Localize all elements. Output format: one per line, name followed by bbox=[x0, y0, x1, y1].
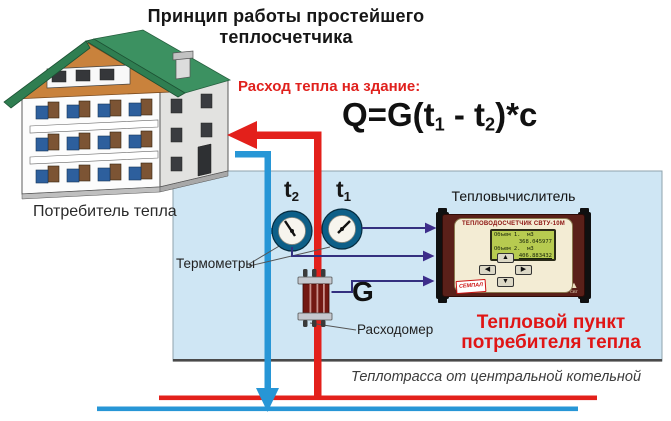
thermometer-t1 bbox=[322, 209, 362, 249]
flowmeter-bottom-flange bbox=[298, 313, 332, 320]
house-door bbox=[198, 144, 211, 176]
house-side-wall bbox=[160, 79, 228, 187]
device-button-up: ▲ bbox=[497, 253, 514, 263]
hot-pipe-to-building bbox=[250, 132, 321, 140]
heat-point-label: Тепловой пункт потребителя тепла bbox=[440, 313, 662, 353]
house-label: Потребитель тепла bbox=[33, 203, 177, 221]
flowmeter bbox=[298, 269, 332, 327]
formula-part: )*c bbox=[495, 96, 537, 133]
chimney-cap bbox=[173, 51, 193, 60]
house-illustration bbox=[4, 30, 230, 199]
brand-logo: СЕМПАЛ bbox=[456, 279, 487, 294]
return-pipe-riser bbox=[265, 151, 272, 390]
t2-label: t2 bbox=[284, 176, 299, 204]
device-button-down: ▼ bbox=[497, 277, 514, 287]
t1-subscript: 1 bbox=[344, 189, 351, 204]
lcd-line: 368.045977 bbox=[494, 239, 552, 246]
heat-point-box-bottom-border bbox=[173, 359, 662, 362]
formula-sub-1: 1 bbox=[435, 115, 445, 135]
attic-window bbox=[76, 70, 90, 81]
calculator-label: Тепловычислитель bbox=[436, 188, 591, 204]
lcd-line: Объем 1. м3 bbox=[494, 232, 552, 239]
formula-part: - t bbox=[445, 96, 485, 133]
return-pipe-main-line bbox=[97, 407, 578, 412]
formula: Q=G(t1 - t2)*c bbox=[342, 96, 537, 136]
formula-part: Q=G(t bbox=[342, 96, 435, 133]
hot-pipe-riser bbox=[314, 132, 322, 398]
heat-point-line2: потребителя тепла bbox=[440, 333, 662, 353]
hot-pipe-arrow-icon bbox=[227, 121, 257, 149]
attic-window bbox=[100, 69, 114, 80]
page-title: Принцип работы простейшего теплосчетчика bbox=[80, 6, 492, 48]
heat-point-line1: Тепловой пункт bbox=[440, 313, 662, 333]
heat-main-label: Теплотрасса от центральной котельной bbox=[340, 369, 652, 385]
flowmeter-body bbox=[303, 284, 329, 313]
device-button-left: ◀ bbox=[479, 265, 496, 275]
flowmeter-top-flange bbox=[298, 277, 332, 284]
hot-pipe-main-line bbox=[159, 396, 597, 401]
thermometer-t2 bbox=[272, 211, 312, 251]
t1-symbol: t bbox=[336, 176, 344, 202]
thermometers-label: Термометры bbox=[176, 256, 255, 271]
flowmeter-label: Расходомер bbox=[357, 322, 433, 337]
device-button-right: ▶ bbox=[515, 265, 532, 275]
formula-sub-2: 2 bbox=[485, 115, 495, 135]
heat-calculator-device: ▲СВТ ТЕПЛОВОДОСЧЕТЧИК СВТУ-10М Объем 1. … bbox=[436, 210, 591, 301]
t2-subscript: 2 bbox=[292, 189, 299, 204]
diagram-page: Принцип работы простейшего теплосчетчика… bbox=[0, 0, 671, 421]
heat-consumption-heading: Расход тепла на здание: bbox=[238, 78, 420, 95]
lcd-line: Объем 2. м3 bbox=[494, 246, 552, 253]
device-model-text: ТЕПЛОВОДОСЧЕТЧИК СВТУ-10М bbox=[454, 221, 573, 227]
t1-label: t1 bbox=[336, 176, 351, 204]
flow-symbol: G bbox=[352, 276, 374, 308]
t2-symbol: t bbox=[284, 176, 292, 202]
